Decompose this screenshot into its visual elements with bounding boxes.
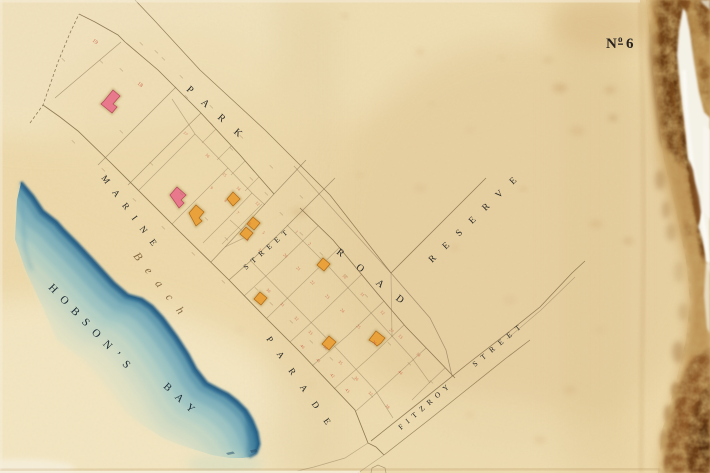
svg-text:N: N <box>606 36 617 52</box>
svg-text:o: o <box>618 34 623 44</box>
svg-text:6: 6 <box>626 36 634 52</box>
